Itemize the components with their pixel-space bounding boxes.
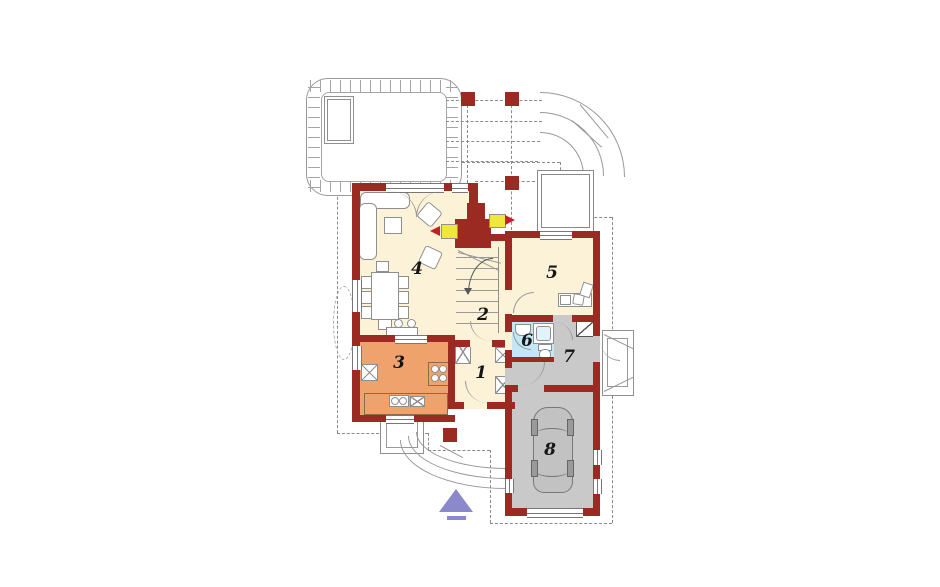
chair-icon bbox=[361, 306, 372, 319]
stool-icon bbox=[394, 319, 403, 328]
car-wheel-icon bbox=[567, 419, 574, 436]
burner-icon bbox=[399, 397, 407, 405]
burner-icon bbox=[391, 397, 399, 405]
door-gap bbox=[464, 402, 487, 409]
wall-segment bbox=[593, 231, 600, 392]
car-wheel-icon bbox=[531, 460, 538, 477]
room-4-label: 4 bbox=[411, 259, 423, 279]
boiler-icon bbox=[576, 321, 594, 337]
terrace-deck-ticks bbox=[308, 84, 320, 188]
wall-segment bbox=[448, 340, 455, 409]
chair-icon bbox=[361, 291, 372, 304]
monitor-icon bbox=[560, 295, 571, 305]
coffee-table-icon bbox=[384, 217, 402, 234]
kitchen-pass-through bbox=[395, 335, 427, 344]
door-gap bbox=[518, 385, 544, 392]
shower-icon bbox=[536, 326, 551, 341]
door-gap bbox=[505, 290, 512, 314]
pergola-post bbox=[505, 176, 519, 190]
window bbox=[593, 450, 602, 465]
stool-icon bbox=[407, 319, 416, 328]
door-gap bbox=[553, 315, 572, 322]
entrance-arrow-icon bbox=[447, 516, 466, 520]
room-1-label: 1 bbox=[475, 363, 487, 383]
window bbox=[352, 346, 362, 370]
pergola-beam-dashes bbox=[446, 141, 540, 142]
stairs-direction-arrowhead bbox=[464, 288, 472, 295]
wall-segment bbox=[505, 392, 512, 516]
car-wheel-icon bbox=[531, 419, 538, 436]
door-gap bbox=[505, 332, 512, 350]
door-gap bbox=[470, 340, 492, 347]
chair-icon bbox=[376, 261, 389, 272]
fireplace-arrow-icon bbox=[505, 215, 515, 225]
fireplace-firebox-icon bbox=[489, 214, 506, 228]
window bbox=[352, 280, 362, 312]
sofa-icon bbox=[359, 203, 377, 260]
car-windshield-line bbox=[536, 428, 568, 439]
terrace-deck-ticks bbox=[310, 80, 456, 92]
appliance-icon bbox=[410, 396, 425, 407]
window bbox=[386, 415, 414, 424]
upper-landing bbox=[537, 170, 594, 232]
pergola-beam-dashes bbox=[446, 121, 542, 122]
entrance-arrow-icon bbox=[439, 489, 473, 512]
burner-icon bbox=[439, 374, 447, 382]
floor-plan: 1 2 3 4 5 6 7 8 bbox=[0, 0, 940, 587]
window bbox=[593, 479, 602, 494]
room-6-label: 6 bbox=[521, 331, 533, 351]
pergola-post bbox=[505, 92, 519, 106]
chair-icon bbox=[398, 276, 409, 289]
room-5-label: 5 bbox=[546, 263, 558, 283]
terrace-planter bbox=[324, 96, 354, 144]
garage-left-gap bbox=[505, 479, 514, 493]
door-gap bbox=[593, 336, 600, 362]
dining-table-icon bbox=[371, 272, 399, 320]
pergola-post bbox=[461, 92, 475, 106]
room-8-label: 8 bbox=[544, 440, 556, 460]
fireplace-arrow-icon bbox=[430, 226, 440, 236]
room-2-label: 2 bbox=[477, 305, 489, 325]
room-3-label: 3 bbox=[393, 353, 405, 373]
burner-icon bbox=[431, 365, 439, 373]
pergola-post-line bbox=[467, 95, 468, 183]
garage-gate bbox=[527, 508, 583, 518]
room-7-label: 7 bbox=[563, 347, 575, 367]
door-gap bbox=[505, 368, 512, 385]
wall-segment bbox=[352, 183, 360, 343]
window bbox=[452, 183, 468, 193]
car-rear-window-line bbox=[536, 466, 568, 477]
fireplace-firebox-icon bbox=[441, 224, 458, 239]
car-wheel-icon bbox=[567, 460, 574, 477]
burner-icon bbox=[431, 374, 439, 382]
porch-pillar bbox=[443, 428, 457, 442]
chair-icon bbox=[398, 291, 409, 304]
window bbox=[540, 231, 572, 240]
burner-icon bbox=[439, 365, 447, 373]
fireplace-icon bbox=[455, 219, 491, 248]
kitchen-sink-icon bbox=[361, 364, 378, 381]
chair-icon bbox=[361, 276, 372, 289]
roof-overhang-dashes bbox=[490, 523, 612, 524]
pergola-beam-dashes bbox=[446, 161, 538, 162]
chair-icon bbox=[398, 306, 409, 319]
pergola-post-line bbox=[511, 95, 512, 230]
